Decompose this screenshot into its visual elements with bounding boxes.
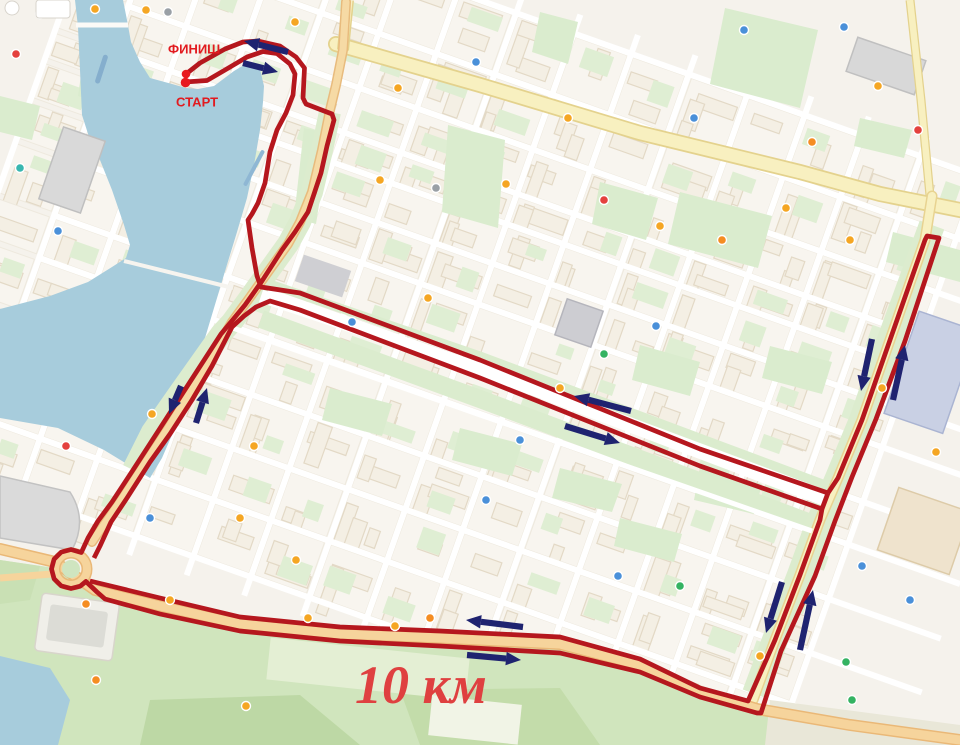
svg-text:ФИНИШ: ФИНИШ [168, 42, 220, 57]
svg-text:СТАРТ: СТАРТ [176, 95, 218, 110]
svg-text:10 км: 10 км [355, 655, 487, 715]
